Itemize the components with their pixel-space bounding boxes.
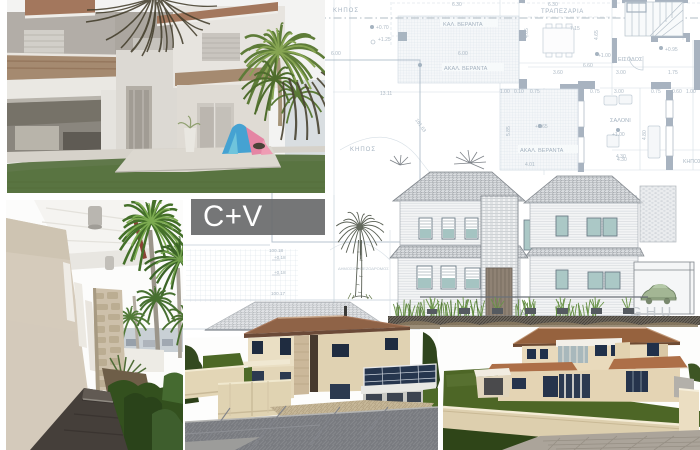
svg-text:0.75: 0.75 (651, 89, 661, 95)
svg-text:4.30: 4.30 (616, 154, 626, 160)
svg-text:4.80: 4.80 (642, 130, 648, 140)
svg-text:6.00: 6.00 (458, 51, 468, 57)
svg-text:5.85: 5.85 (506, 126, 512, 136)
svg-text:+0.95: +0.95 (665, 47, 678, 53)
svg-text:1.00: 1.00 (686, 89, 696, 95)
svg-text:13.11: 13.11 (380, 91, 392, 97)
svg-text:+1.00: +1.00 (612, 132, 625, 138)
svg-text:ΚΗΠΟΣ: ΚΗΠΟΣ (350, 147, 376, 153)
svg-text:100.18: 100.18 (269, 248, 283, 253)
svg-text:0.10: 0.10 (514, 89, 524, 95)
svg-text:+1.25: +1.25 (378, 37, 391, 43)
svg-text:0.60: 0.60 (672, 89, 682, 95)
svg-text:7.15: 7.15 (570, 26, 580, 32)
svg-text:ΑΚΑΛ. ΒΕΡΑΝΤΑ: ΑΚΑΛ. ΒΕΡΑΝΤΑ (444, 66, 488, 72)
svg-text:6.00: 6.00 (331, 51, 341, 57)
svg-text:1.75: 1.75 (668, 70, 678, 76)
svg-text:6.30: 6.30 (452, 2, 462, 8)
svg-text:ΤΡΑΠΕΖΑΡΙΑ: ΤΡΑΠΕΖΑΡΙΑ (541, 9, 584, 15)
svg-text:+0.18: +0.18 (274, 270, 286, 275)
svg-text:1.00: 1.00 (500, 89, 510, 95)
svg-text:4.65: 4.65 (524, 28, 530, 38)
svg-text:100.17: 100.17 (271, 291, 285, 296)
svg-text:ΚΗΠΟΣ: ΚΗΠΟΣ (333, 8, 359, 14)
svg-text:ΚΗΠΟΣ: ΚΗΠΟΣ (683, 159, 700, 165)
svg-text:ΚΑΛ. ΒΕΡΑΝΤΑ: ΚΑΛ. ΒΕΡΑΝΤΑ (443, 22, 483, 28)
svg-text:+1.00: +1.00 (598, 53, 611, 59)
svg-text:3.00: 3.00 (616, 70, 626, 76)
svg-text:+0.18: +0.18 (274, 255, 286, 260)
svg-text:ΣΑΛΟΝΙ: ΣΑΛΟΝΙ (610, 118, 631, 124)
svg-text:ΔΗΜΟΣΙΟΣ ΠΕΖΟΔΡΟΜΟΣ: ΔΗΜΟΣΙΟΣ ΠΕΖΟΔΡΟΜΟΣ (338, 266, 389, 271)
svg-text:0.75: 0.75 (590, 89, 600, 95)
svg-text:3.60: 3.60 (553, 70, 563, 76)
svg-text:4.01: 4.01 (525, 162, 535, 168)
svg-text:4.65: 4.65 (594, 30, 600, 40)
svg-text:0.75: 0.75 (530, 89, 540, 95)
svg-text:6.30: 6.30 (548, 2, 558, 8)
svg-text:3.00: 3.00 (614, 89, 624, 95)
svg-text:+0.70: +0.70 (376, 25, 389, 31)
svg-text:ΑΚΑΛ. ΒΕΡΑΝΤΑ: ΑΚΑΛ. ΒΕΡΑΝΤΑ (520, 148, 564, 154)
svg-text:6.60: 6.60 (583, 63, 593, 69)
